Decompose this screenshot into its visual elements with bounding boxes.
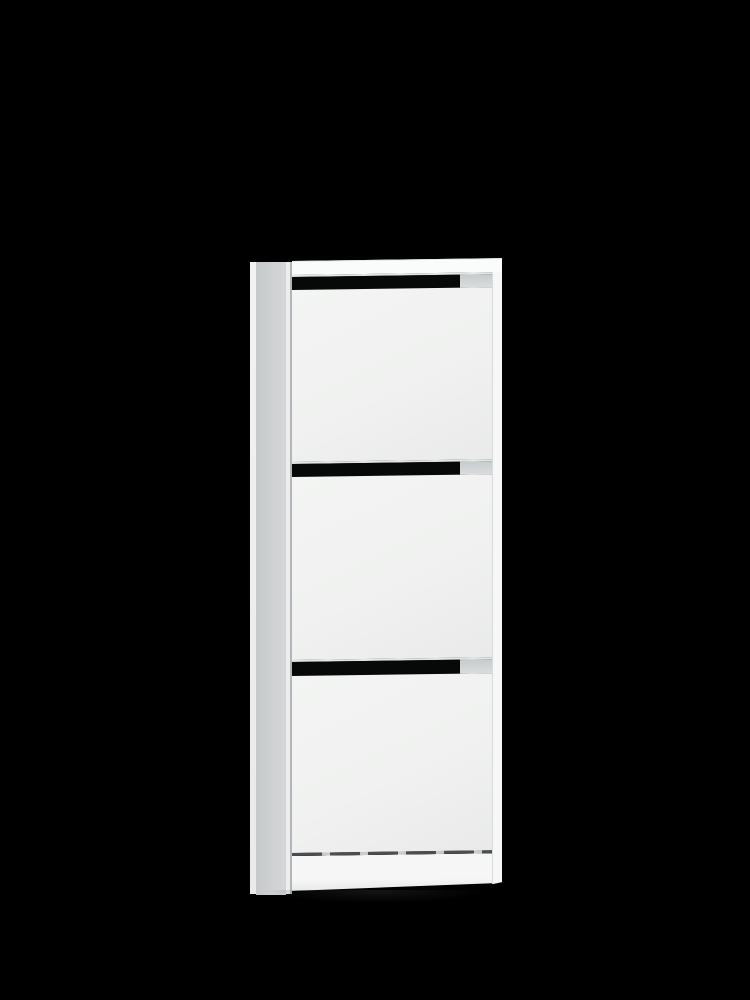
drawer-modules (292, 272, 492, 853)
drawer-slot-shelf-3 (460, 659, 492, 673)
cabinet-plinth (292, 853, 492, 891)
cabinet-front (292, 258, 502, 891)
cabinet-right-frame (492, 258, 502, 884)
cabinet-side-panel (256, 262, 286, 895)
shoe-cabinet (250, 261, 503, 895)
floor-shadow (244, 890, 508, 908)
drawer-slot-shelf-2 (460, 461, 492, 474)
studio-background (0, 0, 750, 1000)
drawer-slot-shelf-1 (460, 274, 492, 287)
drawer-front-panel-3 (292, 673, 492, 853)
drawer-front-panel-1 (292, 287, 492, 462)
drawer-front-panel-2 (292, 474, 492, 660)
